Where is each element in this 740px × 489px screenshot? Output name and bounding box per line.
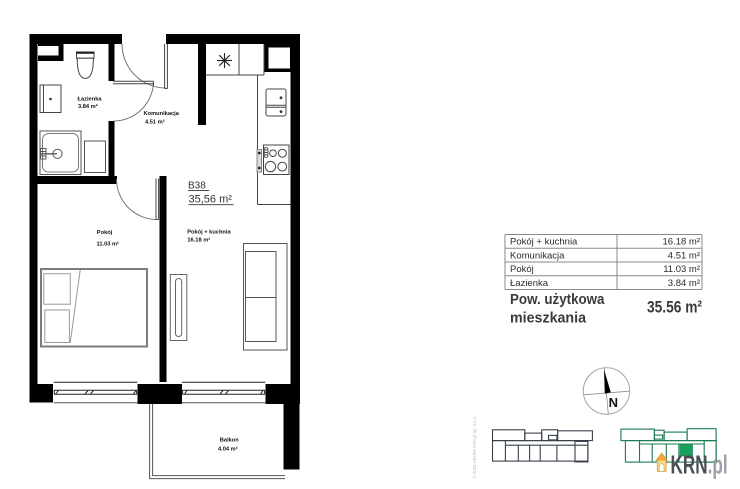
svg-text:Komunikacja: Komunikacja <box>144 111 180 117</box>
svg-text:KRN.pl: KRN.pl <box>671 450 728 480</box>
svg-text:Pokój + kuchnia: Pokój + kuchnia <box>187 230 231 236</box>
svg-text:Balkon: Balkon <box>220 438 239 444</box>
svg-text:35,56 m²: 35,56 m² <box>189 193 233 205</box>
svg-text:16.18 m²: 16.18 m² <box>663 237 701 248</box>
svg-text:Komunikacja: Komunikacja <box>510 251 565 262</box>
svg-text:4.04 m²: 4.04 m² <box>218 446 238 453</box>
svg-text:mieszkania: mieszkania <box>510 310 587 327</box>
svg-text:4.51 m²: 4.51 m² <box>145 119 165 126</box>
svg-text:3.84 m²: 3.84 m² <box>78 103 98 110</box>
svg-text:N: N <box>609 395 618 410</box>
svg-text:Pow. użytkowa: Pow. użytkowa <box>510 291 605 308</box>
svg-text:4.51 m²: 4.51 m² <box>668 251 700 262</box>
svg-text:Pokój: Pokój <box>97 230 113 236</box>
svg-text:11.03 m²: 11.03 m² <box>97 241 120 248</box>
svg-text:3.84 m²: 3.84 m² <box>668 278 700 289</box>
svg-text:© 2023 GRUPA KRN.pl Sp. z o.o.: © 2023 GRUPA KRN.pl Sp. z o.o. <box>472 416 477 478</box>
svg-text:B38: B38 <box>188 181 206 192</box>
svg-text:35.56 m²: 35.56 m² <box>647 299 702 317</box>
svg-text:Łazienka: Łazienka <box>510 278 549 289</box>
svg-text:Pokój: Pokój <box>510 264 534 275</box>
svg-text:11.03 m²: 11.03 m² <box>663 264 700 275</box>
svg-text:Łazienka: Łazienka <box>78 96 103 102</box>
svg-text:16.18 m²: 16.18 m² <box>187 237 210 244</box>
svg-text:Pokój + kuchnia: Pokój + kuchnia <box>510 237 578 248</box>
